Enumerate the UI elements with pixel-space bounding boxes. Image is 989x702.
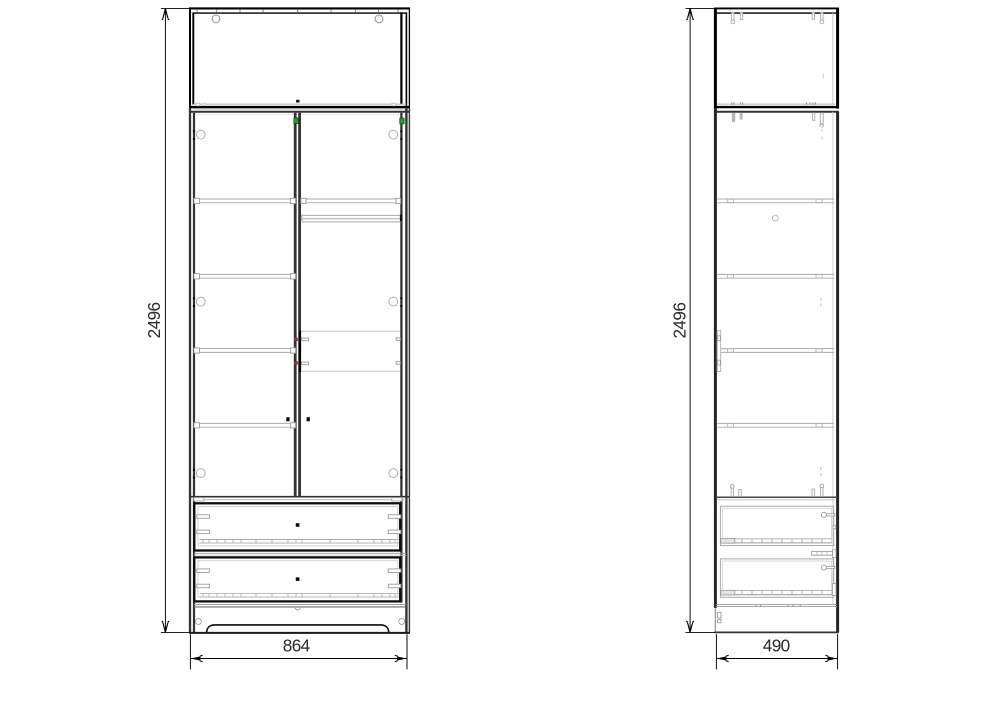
svg-text:2496: 2496 (669, 303, 689, 339)
svg-text:2496: 2496 (144, 302, 164, 338)
svg-text:864: 864 (283, 635, 311, 655)
svg-text:490: 490 (763, 635, 790, 655)
